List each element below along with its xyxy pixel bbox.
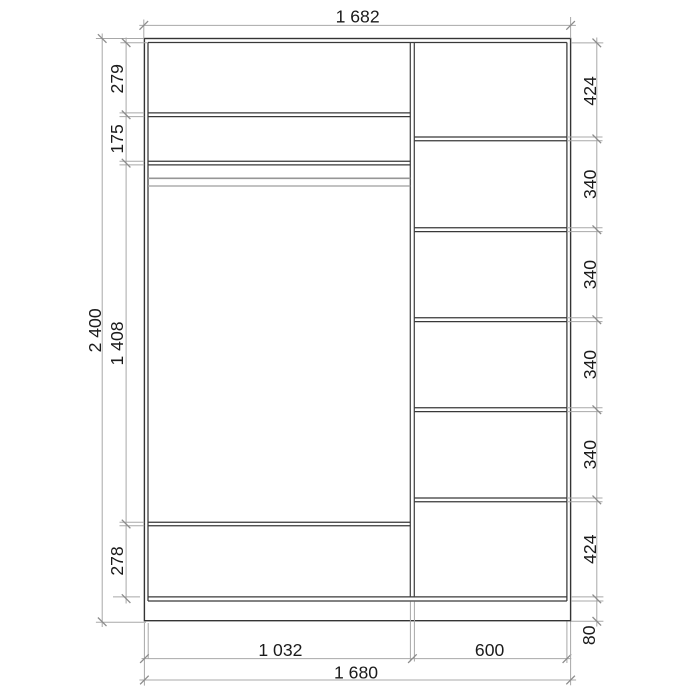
svg-text:340: 340 <box>580 169 600 199</box>
svg-text:340: 340 <box>580 350 600 380</box>
svg-text:2 400: 2 400 <box>85 308 105 352</box>
svg-text:1 032: 1 032 <box>258 640 302 660</box>
svg-text:424: 424 <box>580 534 600 564</box>
svg-text:424: 424 <box>580 76 600 106</box>
svg-text:278: 278 <box>107 546 127 576</box>
svg-text:80: 80 <box>579 625 599 645</box>
svg-text:340: 340 <box>580 260 600 290</box>
svg-text:1 682: 1 682 <box>336 7 380 27</box>
svg-text:1 408: 1 408 <box>107 321 127 365</box>
svg-text:1 680: 1 680 <box>334 662 378 682</box>
svg-text:279: 279 <box>107 64 127 93</box>
svg-text:340: 340 <box>580 440 600 470</box>
svg-text:600: 600 <box>475 640 505 660</box>
svg-text:175: 175 <box>107 124 127 154</box>
